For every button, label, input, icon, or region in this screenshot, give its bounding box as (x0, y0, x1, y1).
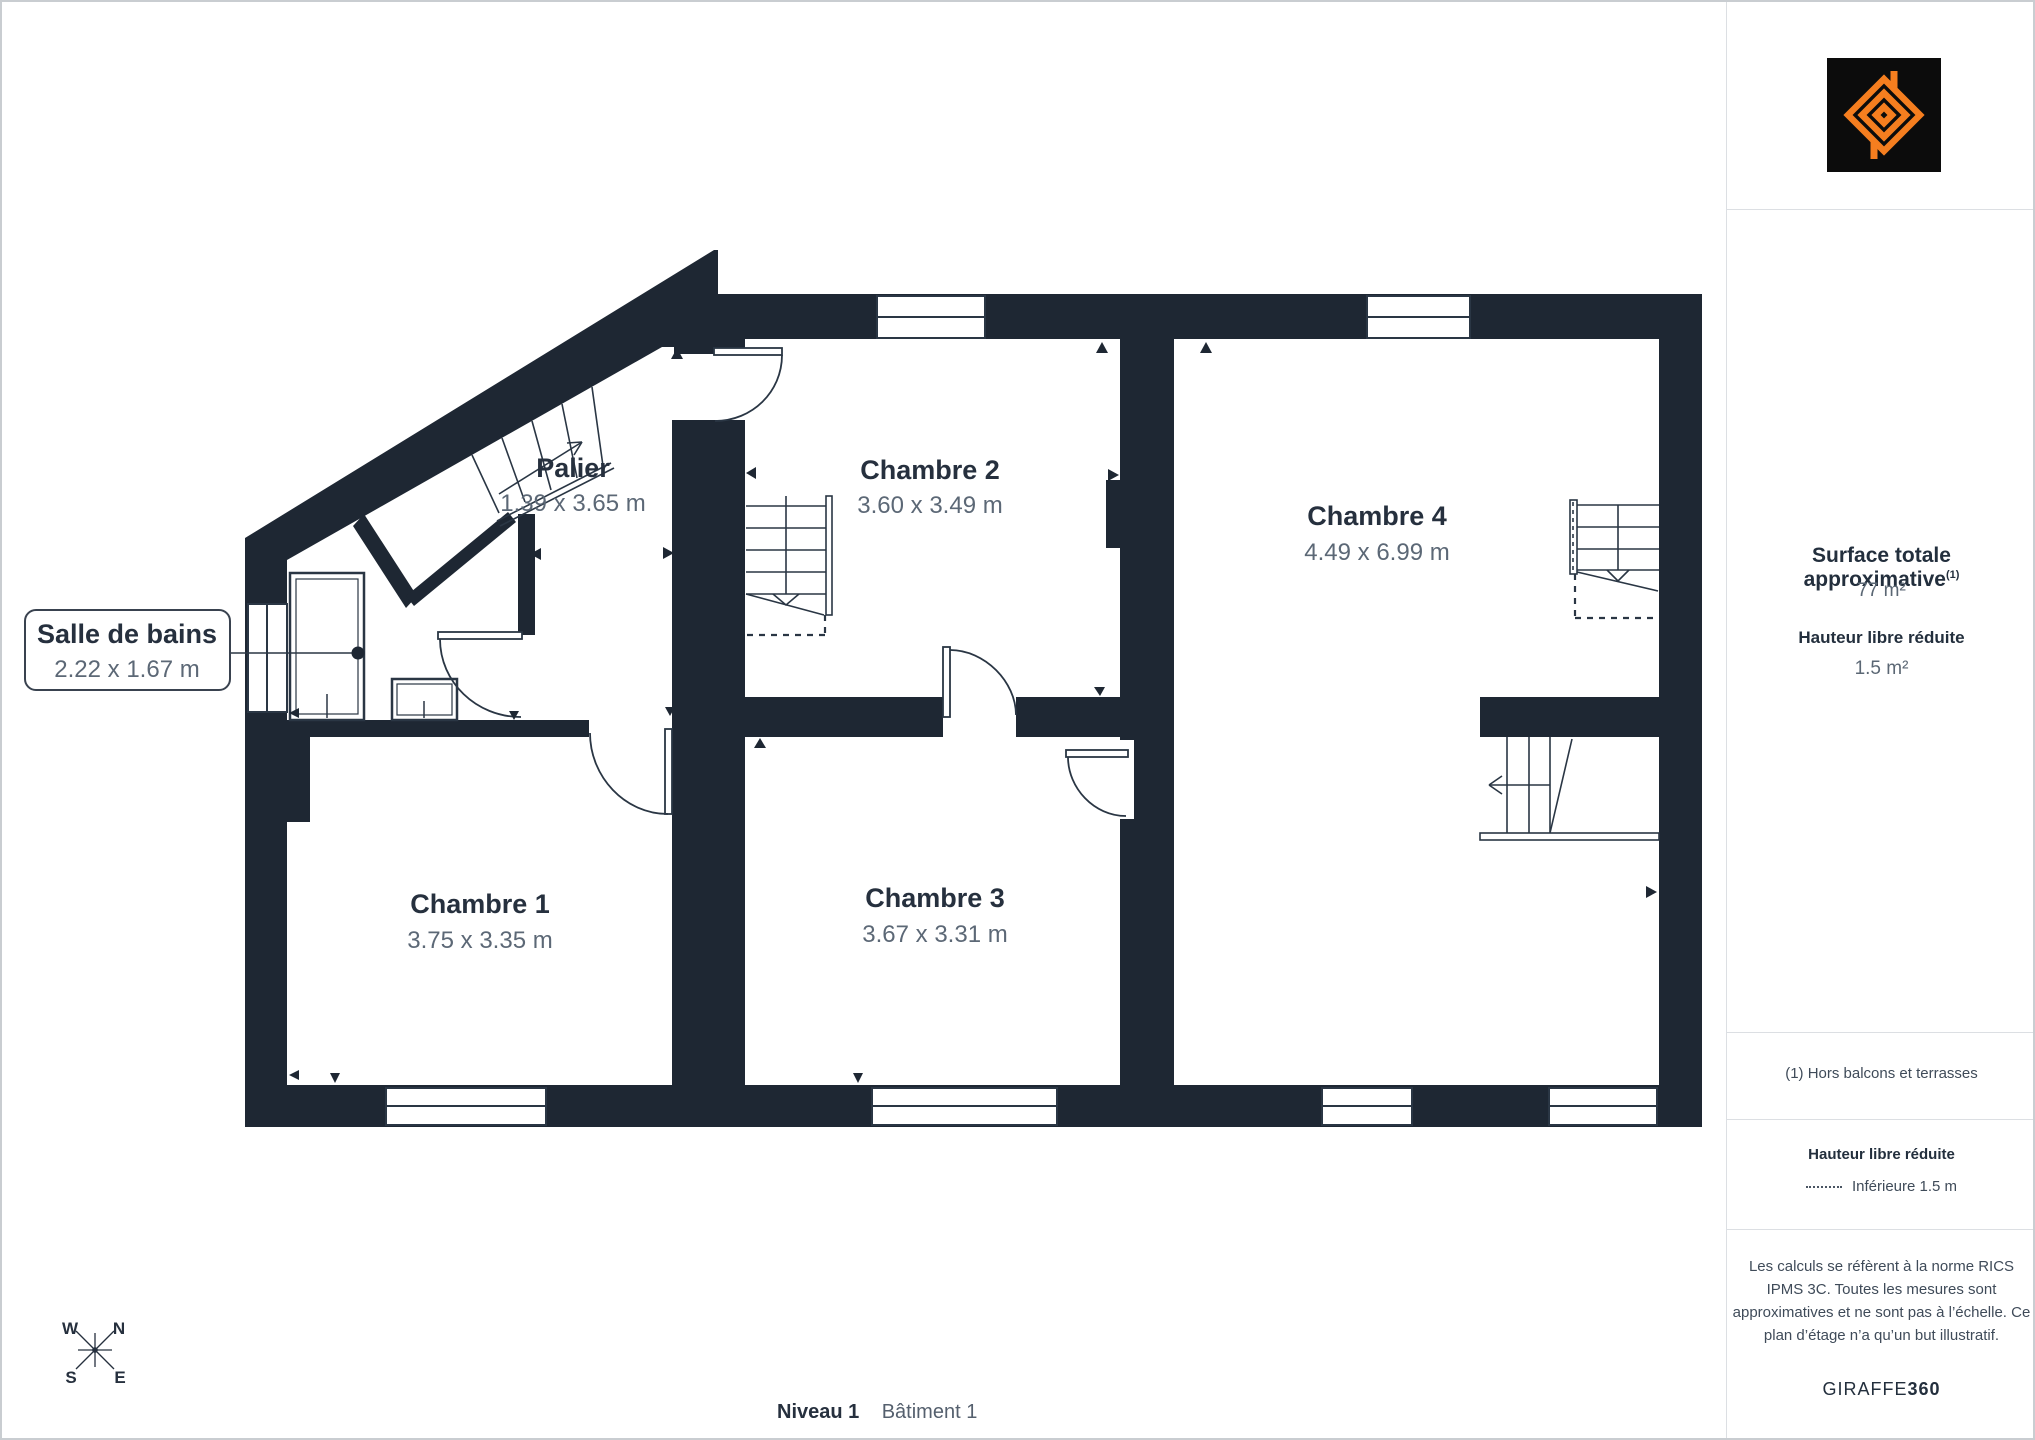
window-top-chambre2 (877, 296, 985, 338)
window-bottom-chambre4-left (1322, 1088, 1412, 1125)
legend-reduced-height-row: Inférieure 1.5 m (1737, 1178, 2027, 1195)
room-label-chambre4: Chambre 4 (1307, 501, 1447, 531)
wall-ch2-ch3-right (1016, 697, 1120, 737)
room-label-chambre3: Chambre 3 (865, 883, 1005, 913)
compass-rose-icon: W N S E (62, 1319, 126, 1387)
legend-dotted-label: Inférieure 1.5 m (1852, 1178, 1957, 1195)
reduced-height-title: Hauteur libre réduite (1737, 628, 2027, 648)
compass-west: W (62, 1319, 79, 1338)
brand-name: GIRAFFE (1822, 1379, 1907, 1399)
wall-ch2-ch3-left (745, 697, 943, 737)
wall-apex-pillar (674, 339, 714, 354)
sidebar-divider-3 (1727, 1119, 2035, 1120)
disclaimer-text: Les calculs se réfèrent à la norme RICS … (1732, 1255, 2032, 1347)
room-dims-salle-de-bains: 2.22 x 1.67 m (54, 656, 199, 683)
opening-palier-chambre2 (674, 354, 745, 420)
svg-text:Niveau 1 Bâtiment 1: Niveau 1 Bâtiment 1 (777, 1401, 977, 1423)
window-bottom-chambre3 (872, 1088, 1057, 1125)
reduced-height-value: 1.5 m² (1737, 658, 2027, 680)
floor-footer: Niveau 1 Bâtiment 1 (777, 1401, 977, 1423)
floorplan-page: Salle de bains 2.22 x 1.67 m Palier 1.39… (0, 0, 2035, 1440)
opening-chambre2-chambre3-door (943, 697, 1016, 737)
brand-suffix: 360 (1907, 1379, 1940, 1399)
window-bottom-chambre4-right (1549, 1088, 1657, 1125)
footer-building: Bâtiment 1 (882, 1401, 978, 1423)
room-label-chambre1: Chambre 1 (410, 889, 550, 919)
wall-ch2-ch4-notch (1106, 480, 1120, 548)
info-sidebar: Surface totale approximative(1) 77 m² Ha… (1726, 2, 2035, 1438)
sidebar-divider-4 (1727, 1229, 2035, 1230)
surface-total-value: 77 m² (1737, 580, 2027, 602)
dotted-line-icon (1806, 1186, 1842, 1188)
wall-ch1-corner-pillar (245, 737, 310, 822)
compass-north: N (113, 1319, 125, 1338)
sidebar-divider-1 (1727, 209, 2035, 210)
room-dims-chambre2: 3.60 x 3.49 m (857, 492, 1002, 519)
room-label-chambre2: Chambre 2 (860, 455, 1000, 485)
giraffe360-wordmark: GIRAFFE360 (1737, 1379, 2027, 1400)
opening-chambre1-door (589, 720, 672, 737)
room-dims-chambre1: 3.75 x 3.35 m (407, 927, 552, 954)
window-left-bathroom (248, 604, 287, 712)
room-dims-palier: 1.39 x 3.65 m (500, 490, 645, 517)
wall-ch3-ch4-lower (1120, 819, 1134, 1085)
footer-level: Niveau 1 (777, 1401, 859, 1423)
compass-east: E (114, 1368, 125, 1387)
compass-south: S (65, 1368, 76, 1387)
room-label-palier: Palier (536, 453, 610, 483)
room-label-salle-de-bains: Salle de bains (37, 619, 217, 649)
callout-leader-dot (352, 647, 365, 660)
wall-ch3-ch4-upper (1120, 548, 1134, 740)
giraffe360-logo (1827, 58, 1941, 172)
room-dims-chambre3: 3.67 x 3.31 m (862, 921, 1007, 948)
window-bottom-chambre1 (386, 1088, 546, 1125)
wall-bathroom-right (518, 514, 535, 635)
window-top-chambre4 (1367, 296, 1470, 338)
room-dims-chambre4: 4.49 x 6.99 m (1304, 539, 1449, 566)
wall-bath-ch1-divider (247, 720, 589, 737)
sidebar-divider-2 (1727, 1032, 2035, 1033)
wall-ch4-stair-stub (1480, 697, 1659, 737)
footnote-balconies: (1) Hors balcons et terrasses (1737, 1065, 2027, 1082)
wall-central-vertical (672, 420, 745, 1085)
legend-title: Hauteur libre réduite (1737, 1146, 2027, 1163)
wall-ch2-ch4-pillar (1120, 339, 1174, 548)
